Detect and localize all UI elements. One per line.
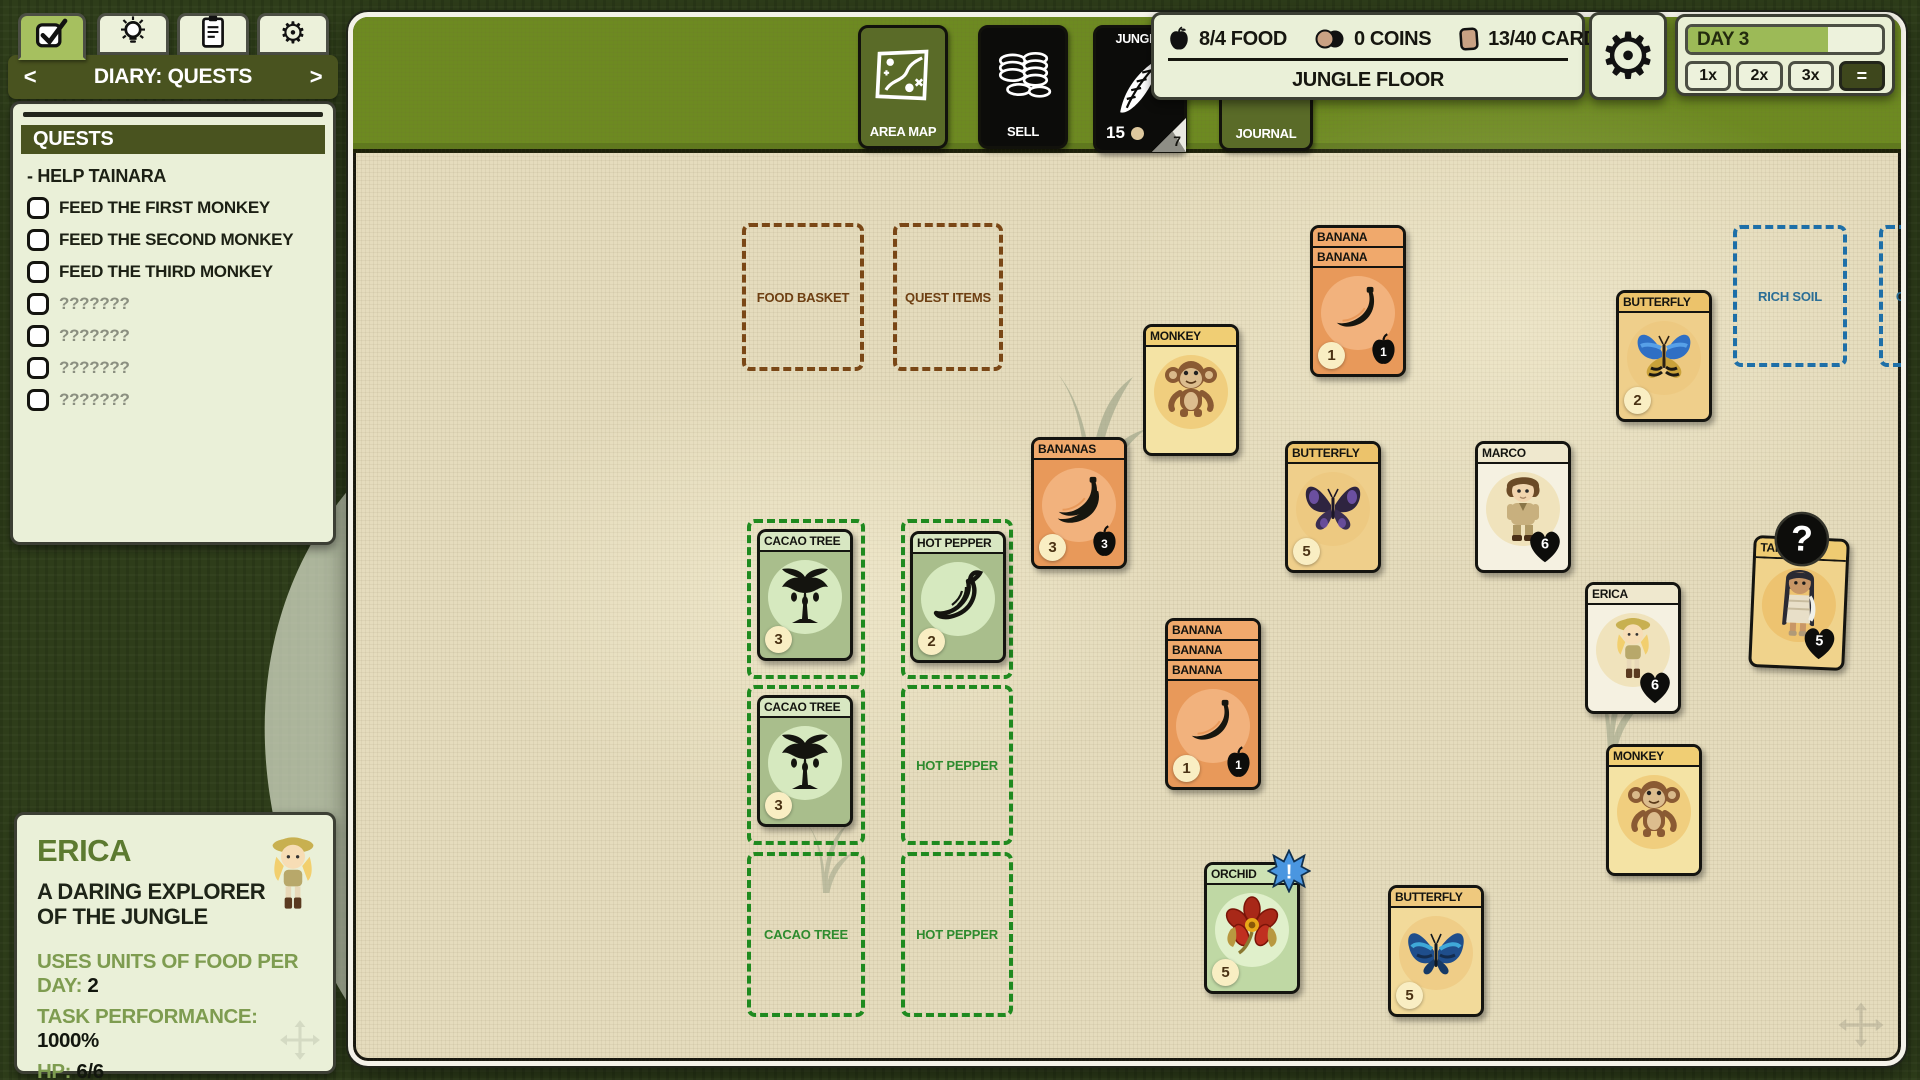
svg-text:6: 6 <box>1541 536 1549 552</box>
diary-next-button[interactable]: > <box>294 55 338 99</box>
food-cost-badge: 3 <box>1088 524 1121 564</box>
card-title: MONKEY <box>1609 747 1699 767</box>
cost-badge: 5 <box>1212 959 1239 986</box>
card-art-circle <box>1399 916 1473 990</box>
stat-line: TASK PERFORMANCE: 1000% <box>37 1005 313 1053</box>
slot-hot-pepper[interactable]: HOT PEPPER <box>901 685 1013 845</box>
cards-counter: 13/40 CARDS <box>1457 26 1610 53</box>
card-art-circle <box>1215 893 1289 967</box>
deck-corner-number: 7 <box>1173 133 1181 149</box>
day-panel: DAY 3 1x2x3x= <box>1675 14 1895 96</box>
cost-badge: 1 <box>1173 755 1200 782</box>
svg-text:5: 5 <box>1815 633 1824 649</box>
cost-badge: 2 <box>918 628 945 655</box>
cost-badge: 3 <box>765 792 792 819</box>
apple-icon <box>1166 25 1192 53</box>
card-butterfly[interactable]: BUTTERFLY2 <box>1616 290 1712 422</box>
quest-label: ??????? <box>59 294 130 314</box>
food-cost-badge: 1 <box>1367 332 1400 372</box>
journal-label: JOURNAL <box>1236 126 1297 148</box>
butterfly-blue-icon <box>1405 921 1467 986</box>
cacao-tree-icon <box>774 563 836 632</box>
quest-label: FEED THE FIRST MONKEY <box>59 198 270 218</box>
monkey-icon <box>1623 777 1685 848</box>
card-title: ERICA <box>1588 585 1678 605</box>
slot-cacao-tree[interactable]: CACAO TREE <box>747 852 865 1017</box>
board-texture <box>353 17 1901 1061</box>
svg-text:1: 1 <box>1380 345 1387 359</box>
card-title: HOT PEPPER <box>913 534 1003 554</box>
card-monkey[interactable]: MONKEY <box>1143 324 1239 456</box>
food-counter: 8/4 FOOD <box>1166 25 1287 53</box>
card-banana[interactable]: BANANABANANA11 <box>1310 225 1406 377</box>
cost-badge: 3 <box>765 626 792 653</box>
day-progress-bar: DAY 3 <box>1685 24 1885 55</box>
quest-label: ??????? <box>59 326 130 346</box>
resource-panel: 8/4 FOOD 0 COINS 13/40 CARDS JUNGLE FLOO… <box>1151 12 1585 100</box>
card-title: BUTTERFLY <box>1391 888 1481 908</box>
svg-text:!: ! <box>1286 860 1293 883</box>
slot-food-basket[interactable]: FOOD BASKET <box>742 223 864 371</box>
character-description: A DARING EXPLORER OF THE JUNGLE <box>37 879 277 930</box>
coin-dot-icon <box>1131 127 1144 140</box>
quest-checkbox[interactable] <box>27 293 49 315</box>
tab-cardlist[interactable] <box>177 13 249 55</box>
card-butterfly[interactable]: BUTTERFLY5 <box>1388 885 1484 1017</box>
stat-line: USES UNITS OF FOOD PER DAY: 2 <box>37 950 313 998</box>
tab-settings[interactable]: ⚙ <box>257 13 329 55</box>
card-butterfly[interactable]: BUTTERFLY5 <box>1285 441 1381 573</box>
move-arrows-watermark <box>277 1017 323 1063</box>
slot-label: HOT PEPPER <box>908 927 1006 942</box>
card-banana[interactable]: BANANABANANABANANA11 <box>1165 618 1261 790</box>
quest-group-title: - HELP TAINARA <box>27 166 319 187</box>
slot-hot-pepper[interactable]: HOT PEPPER <box>901 852 1013 1017</box>
hp-heart-badge: 5 <box>1797 621 1841 668</box>
game-board: AREA MAP SELL JUNGLE 15 7 JOURNAL <box>348 12 1906 1066</box>
card-bananas[interactable]: BANANAS33 <box>1031 437 1127 569</box>
monkey-icon <box>1160 357 1222 428</box>
card-art-circle <box>1617 775 1691 849</box>
quest-item: FEED THE THIRD MONKEY <box>27 261 319 283</box>
card-art-circle <box>1154 355 1228 429</box>
quest-label: FEED THE SECOND MONKEY <box>59 230 293 250</box>
quest-item: ??????? <box>27 325 319 347</box>
day-label: DAY 3 <box>1688 27 1882 53</box>
cost-badge: 1 <box>1318 342 1345 369</box>
card-tainara[interactable]: TAINARA5? <box>1748 535 1850 671</box>
quest-label: ??????? <box>59 390 130 410</box>
quest-checkbox[interactable] <box>27 261 49 283</box>
quest-checkbox[interactable] <box>27 325 49 347</box>
tab-quests[interactable] <box>18 13 86 60</box>
quest-checkbox[interactable] <box>27 197 49 219</box>
gear-icon: ⚙ <box>1599 24 1656 88</box>
hot-pepper-icon <box>928 567 988 632</box>
quest-label: ??????? <box>59 358 130 378</box>
unknown-question-badge: ? <box>1771 509 1832 574</box>
card-art <box>1609 767 1699 873</box>
stat-line: HP: 6/6 <box>37 1060 313 1080</box>
card-marco[interactable]: MARCO6 <box>1475 441 1571 573</box>
svg-text:?: ? <box>1790 518 1814 559</box>
speed-button-1x[interactable]: 1x <box>1685 61 1731 91</box>
coins-counter: 0 COINS <box>1313 27 1431 51</box>
svg-text:6: 6 <box>1651 677 1659 693</box>
cardback-icon <box>1457 26 1481 53</box>
card-monkey[interactable]: MONKEY <box>1606 744 1702 876</box>
alert-star-badge: ! <box>1267 849 1311 898</box>
slot-cocoa-bean[interactable]: COCOA BEAN <box>1879 225 1906 367</box>
card-art-circle <box>1296 472 1370 546</box>
map-icon <box>871 38 935 112</box>
card-art-circle <box>921 562 995 636</box>
card-art-circle <box>768 726 842 800</box>
slot-rich-soil[interactable]: RICH SOIL <box>1733 225 1847 367</box>
character-stats: USES UNITS OF FOOD PER DAY: 2TASK PERFOR… <box>37 950 313 1080</box>
quest-item: ??????? <box>27 293 319 315</box>
tab-ideas[interactable] <box>97 13 169 55</box>
coin-icon <box>1313 27 1347 51</box>
sell-button[interactable]: SELL <box>978 25 1068 149</box>
slot-label: COCOA BEAN <box>1888 289 1906 304</box>
quest-checkbox[interactable] <box>27 389 49 411</box>
quest-label: FEED THE THIRD MONKEY <box>59 262 273 282</box>
card-title: MARCO <box>1478 444 1568 464</box>
card-art-circle <box>768 560 842 634</box>
stat-value: 2 <box>87 974 98 997</box>
move-arrows-watermark <box>1835 999 1887 1051</box>
location-label: JUNGLE FLOOR <box>1166 63 1570 97</box>
hp-heart-badge: 6 <box>1634 666 1676 711</box>
hp-heart-badge: 6 <box>1524 525 1566 570</box>
speed-button-3x[interactable]: 3x <box>1788 61 1834 91</box>
sell-label: SELL <box>1007 124 1039 146</box>
quest-list: FEED THE FIRST MONKEYFEED THE SECOND MON… <box>21 197 325 411</box>
quest-item: FEED THE FIRST MONKEY <box>27 197 319 219</box>
quest-item: ??????? <box>27 389 319 411</box>
stat-label: USES UNITS OF FOOD PER DAY: <box>37 950 298 997</box>
butterfly-blueorange-icon <box>1633 326 1695 391</box>
card-erica[interactable]: ERICA6 <box>1585 582 1681 714</box>
card-orchid[interactable]: ORCHID5! <box>1204 862 1300 994</box>
card-hot-pepper[interactable]: HOT PEPPER2 <box>910 531 1006 663</box>
card-title: CACAO TREE <box>760 698 850 718</box>
settings-gear-button[interactable]: ⚙ <box>1589 12 1667 100</box>
card-title: BANANAS <box>1034 440 1124 460</box>
card-title: BANANA <box>1168 621 1258 641</box>
quest-item: ??????? <box>27 357 319 379</box>
card-title: BANANA <box>1168 641 1258 661</box>
food-cost-badge: 1 <box>1222 745 1255 785</box>
cost-badge: 3 <box>1039 534 1066 561</box>
coins-icon <box>992 38 1054 112</box>
resource-divider <box>1168 58 1568 61</box>
character-info-panel: ERICA A DARING EXPLORER OF THE JUNGLE US… <box>14 812 336 1074</box>
svg-text:3: 3 <box>1101 537 1108 551</box>
diary-prev-button[interactable]: < <box>8 55 52 99</box>
cost-badge: 5 <box>1293 538 1320 565</box>
slot-label: QUEST ITEMS <box>897 290 999 305</box>
slot-label: HOT PEPPER <box>908 758 1006 773</box>
butterfly-purple-icon <box>1302 477 1364 542</box>
quest-checkbox[interactable] <box>27 357 49 379</box>
card-cacao-tree[interactable]: CACAO TREE3 <box>757 695 853 827</box>
card-title: BANANA <box>1313 228 1403 248</box>
diary-header: < DIARY: QUESTS > <box>8 55 338 99</box>
card-cacao-tree[interactable]: CACAO TREE3 <box>757 529 853 661</box>
panel-rule <box>23 112 323 117</box>
stat-label: HP: <box>37 1060 76 1080</box>
quests-header: QUESTS <box>21 125 325 154</box>
svg-text:1: 1 <box>1235 758 1242 772</box>
card-art <box>1146 347 1236 453</box>
card-title: MONKEY <box>1146 327 1236 347</box>
card-title: BANANA <box>1168 661 1258 681</box>
slot-label: FOOD BASKET <box>749 290 857 305</box>
area-map-label: AREA MAP <box>870 124 936 146</box>
pause-button[interactable]: = <box>1839 61 1885 91</box>
stat-label: TASK PERFORMANCE: <box>37 1005 258 1028</box>
clipboard-icon <box>198 14 228 55</box>
slot-quest-items[interactable]: QUEST ITEMS <box>893 223 1003 371</box>
check-icon <box>32 17 72 56</box>
card-title: BANANA <box>1313 248 1403 268</box>
slot-label: RICH SOIL <box>1750 289 1830 304</box>
stat-value: 6/6 <box>76 1060 103 1080</box>
jungle-deck-count: 15 <box>1106 123 1144 143</box>
cost-badge: 2 <box>1624 387 1651 414</box>
quest-item: FEED THE SECOND MONKEY <box>27 229 319 251</box>
area-map-button[interactable]: AREA MAP <box>858 25 948 149</box>
speed-button-2x[interactable]: 2x <box>1736 61 1782 91</box>
quests-panel: QUESTS - HELP TAINARA FEED THE FIRST MON… <box>10 101 336 545</box>
stat-value: 1000% <box>37 1029 99 1052</box>
card-title: BUTTERFLY <box>1288 444 1378 464</box>
card-title: CACAO TREE <box>760 532 850 552</box>
card-title: BUTTERFLY <box>1619 293 1709 313</box>
lightbulb-icon <box>115 14 151 55</box>
quest-checkbox[interactable] <box>27 229 49 251</box>
orchid-icon <box>1221 895 1283 966</box>
slot-label: CACAO TREE <box>756 927 856 942</box>
card-art-circle <box>1627 321 1701 395</box>
gear-icon: ⚙ <box>280 19 307 49</box>
erica-sprite <box>265 829 321 917</box>
diary-title: DIARY: QUESTS <box>94 65 252 89</box>
cost-badge: 5 <box>1396 982 1423 1009</box>
cacao-tree-icon <box>774 729 836 798</box>
speed-controls: 1x2x3x= <box>1685 61 1885 91</box>
